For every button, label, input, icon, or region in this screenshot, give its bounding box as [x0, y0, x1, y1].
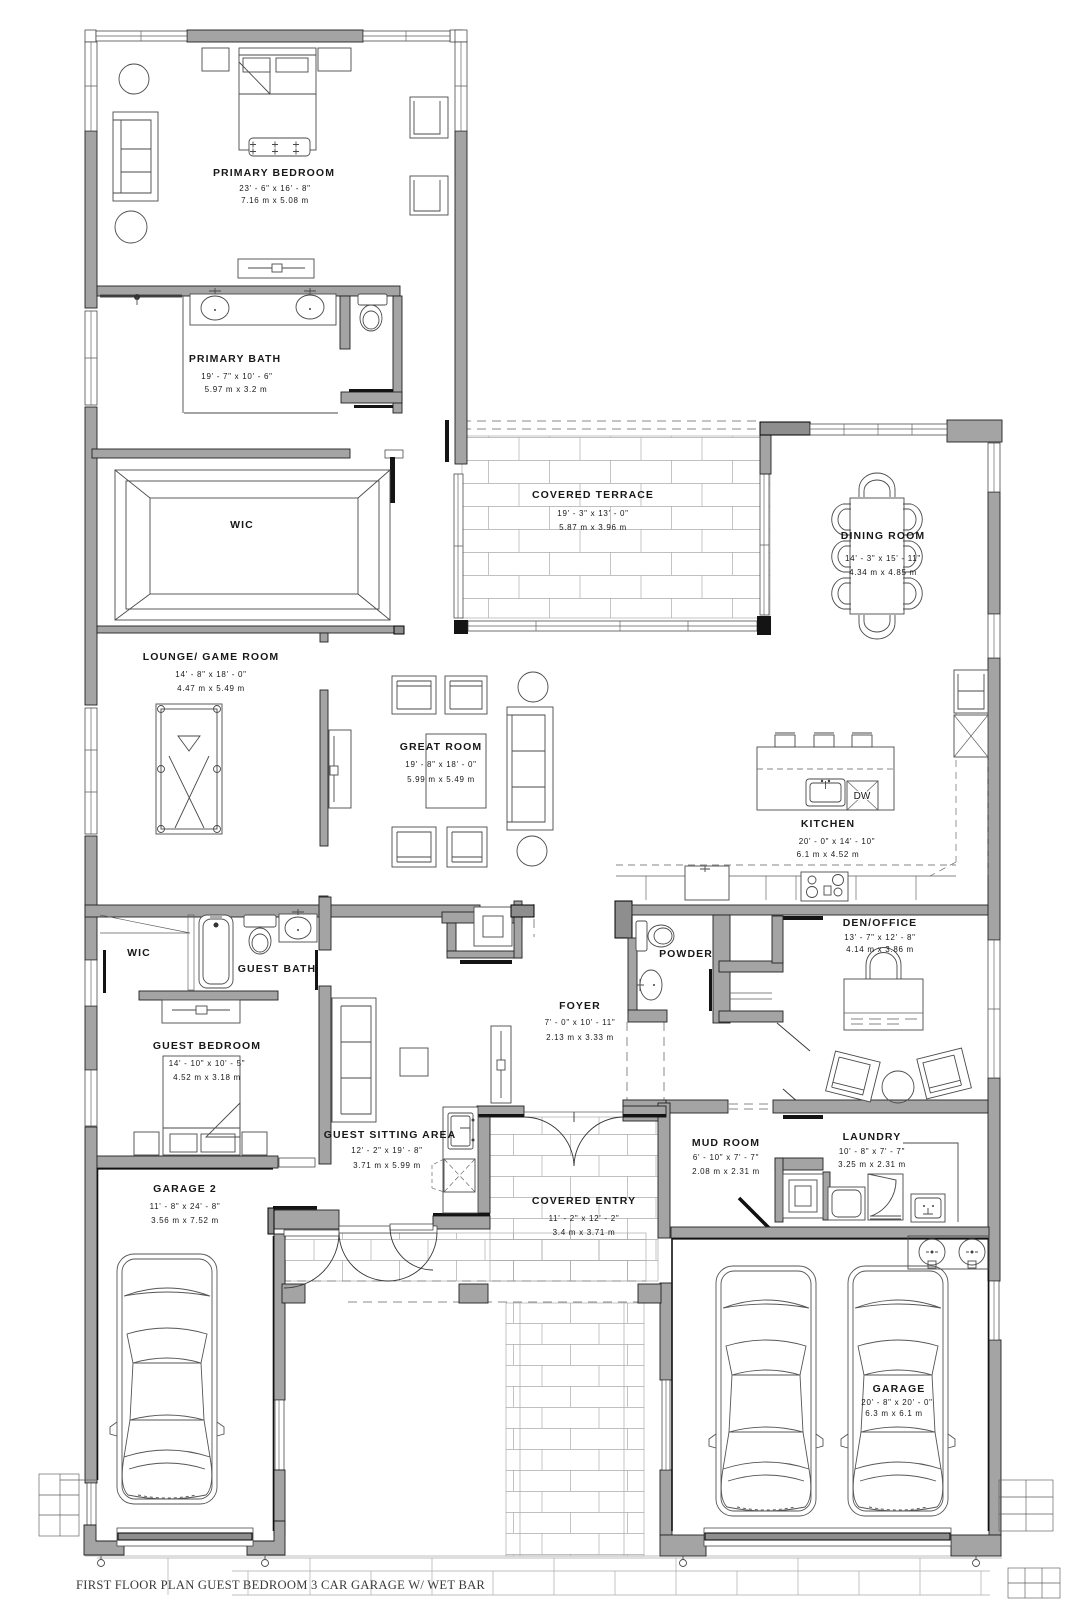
svg-text:COVERED ENTRY: COVERED ENTRY	[532, 1195, 636, 1207]
svg-text:4.14 m x 3.86 m: 4.14 m x 3.86 m	[846, 945, 914, 954]
svg-text:12' - 2" x 19' - 8": 12' - 2" x 19' - 8"	[351, 1146, 422, 1155]
svg-text:LOUNGE/ GAME ROOM: LOUNGE/ GAME ROOM	[143, 651, 280, 663]
svg-text:GARAGE: GARAGE	[873, 1383, 926, 1395]
svg-text:11' - 2" x 12' - 2": 11' - 2" x 12' - 2"	[549, 1214, 620, 1223]
svg-text:3.71 m x 5.99 m: 3.71 m x 5.99 m	[353, 1161, 421, 1170]
svg-text:19' - 3" x 13' - 0": 19' - 3" x 13' - 0"	[557, 509, 628, 518]
svg-text:14' - 10" x 10' - 5": 14' - 10" x 10' - 5"	[169, 1059, 246, 1068]
svg-text:6' - 10" x 7' - 7": 6' - 10" x 7' - 7"	[693, 1153, 759, 1162]
svg-text:2.13 m x 3.33 m: 2.13 m x 3.33 m	[546, 1033, 614, 1042]
svg-text:GUEST BEDROOM: GUEST BEDROOM	[153, 1040, 261, 1052]
svg-text:3.4 m x 3.71 m: 3.4 m x 3.71 m	[553, 1228, 616, 1237]
svg-text:FIRST FLOOR PLAN GUEST BEDROOM: FIRST FLOOR PLAN GUEST BEDROOM 3 CAR GAR…	[76, 1578, 485, 1592]
svg-text:14' - 3" x 15' - 11": 14' - 3" x 15' - 11"	[845, 554, 921, 563]
svg-text:COVERED TERRACE: COVERED TERRACE	[532, 489, 654, 501]
svg-text:7' - 0" x 10' - 11": 7' - 0" x 10' - 11"	[545, 1018, 616, 1027]
svg-text:5.97 m x 3.2 m: 5.97 m x 3.2 m	[205, 385, 268, 394]
svg-text:GARAGE 2: GARAGE 2	[153, 1183, 217, 1195]
svg-text:23' - 6" x 16' - 8": 23' - 6" x 16' - 8"	[239, 184, 310, 193]
svg-text:19' - 7" x 10' - 6": 19' - 7" x 10' - 6"	[201, 372, 272, 381]
svg-text:DEN/OFFICE: DEN/OFFICE	[843, 917, 918, 929]
svg-text:WIC: WIC	[127, 947, 151, 959]
svg-text:3.25 m x 2.31 m: 3.25 m x 2.31 m	[838, 1160, 906, 1169]
svg-text:LAUNDRY: LAUNDRY	[843, 1131, 902, 1143]
svg-text:7.16 m x 5.08 m: 7.16 m x 5.08 m	[241, 196, 309, 205]
svg-text:20' - 0" x 14' - 10": 20' - 0" x 14' - 10"	[799, 837, 876, 846]
svg-text:GREAT ROOM: GREAT ROOM	[400, 741, 483, 753]
svg-text:19' - 8" x 18' - 0": 19' - 8" x 18' - 0"	[405, 760, 476, 769]
svg-text:5.99 m x 5.49 m: 5.99 m x 5.49 m	[407, 775, 475, 784]
svg-text:POWDER: POWDER	[659, 948, 713, 960]
svg-text:FOYER: FOYER	[559, 1000, 601, 1012]
svg-text:DINING ROOM: DINING ROOM	[841, 530, 925, 542]
svg-text:11' - 8" x 24' - 8": 11' - 8" x 24' - 8"	[150, 1202, 221, 1211]
svg-text:WIC: WIC	[230, 519, 254, 531]
svg-text:KITCHEN: KITCHEN	[801, 818, 855, 830]
svg-text:4.52 m x 3.18 m: 4.52 m x 3.18 m	[173, 1073, 241, 1082]
svg-text:13' - 7" x 12' - 8": 13' - 7" x 12' - 8"	[844, 933, 915, 942]
svg-text:MUD ROOM: MUD ROOM	[692, 1137, 760, 1149]
svg-text:10' - 8" x 7' - 7": 10' - 8" x 7' - 7"	[839, 1147, 905, 1156]
svg-text:14' - 8" x 18' - 0": 14' - 8" x 18' - 0"	[175, 670, 246, 679]
svg-text:4.47 m x 5.49 m: 4.47 m x 5.49 m	[177, 684, 245, 693]
svg-text:GUEST BATH: GUEST BATH	[238, 963, 316, 975]
svg-text:DW: DW	[854, 791, 871, 802]
svg-text:2.08 m x 2.31 m: 2.08 m x 2.31 m	[692, 1167, 760, 1176]
svg-text:4.34 m x 4.85 m: 4.34 m x 4.85 m	[849, 568, 917, 577]
svg-text:PRIMARY BATH: PRIMARY BATH	[189, 353, 281, 365]
svg-text:GUEST SITTING AREA: GUEST SITTING AREA	[324, 1129, 457, 1141]
svg-text:5.87 m x 3.96 m: 5.87 m x 3.96 m	[559, 523, 627, 532]
svg-text:20' - 8" x 20' - 0": 20' - 8" x 20' - 0"	[861, 1398, 932, 1407]
svg-text:6.1 m x 4.52 m: 6.1 m x 4.52 m	[797, 850, 860, 859]
svg-text:6.3 m x 6.1 m: 6.3 m x 6.1 m	[865, 1409, 923, 1418]
svg-text:PRIMARY BEDROOM: PRIMARY BEDROOM	[213, 167, 335, 179]
svg-text:3.56 m x 7.52 m: 3.56 m x 7.52 m	[151, 1216, 219, 1225]
